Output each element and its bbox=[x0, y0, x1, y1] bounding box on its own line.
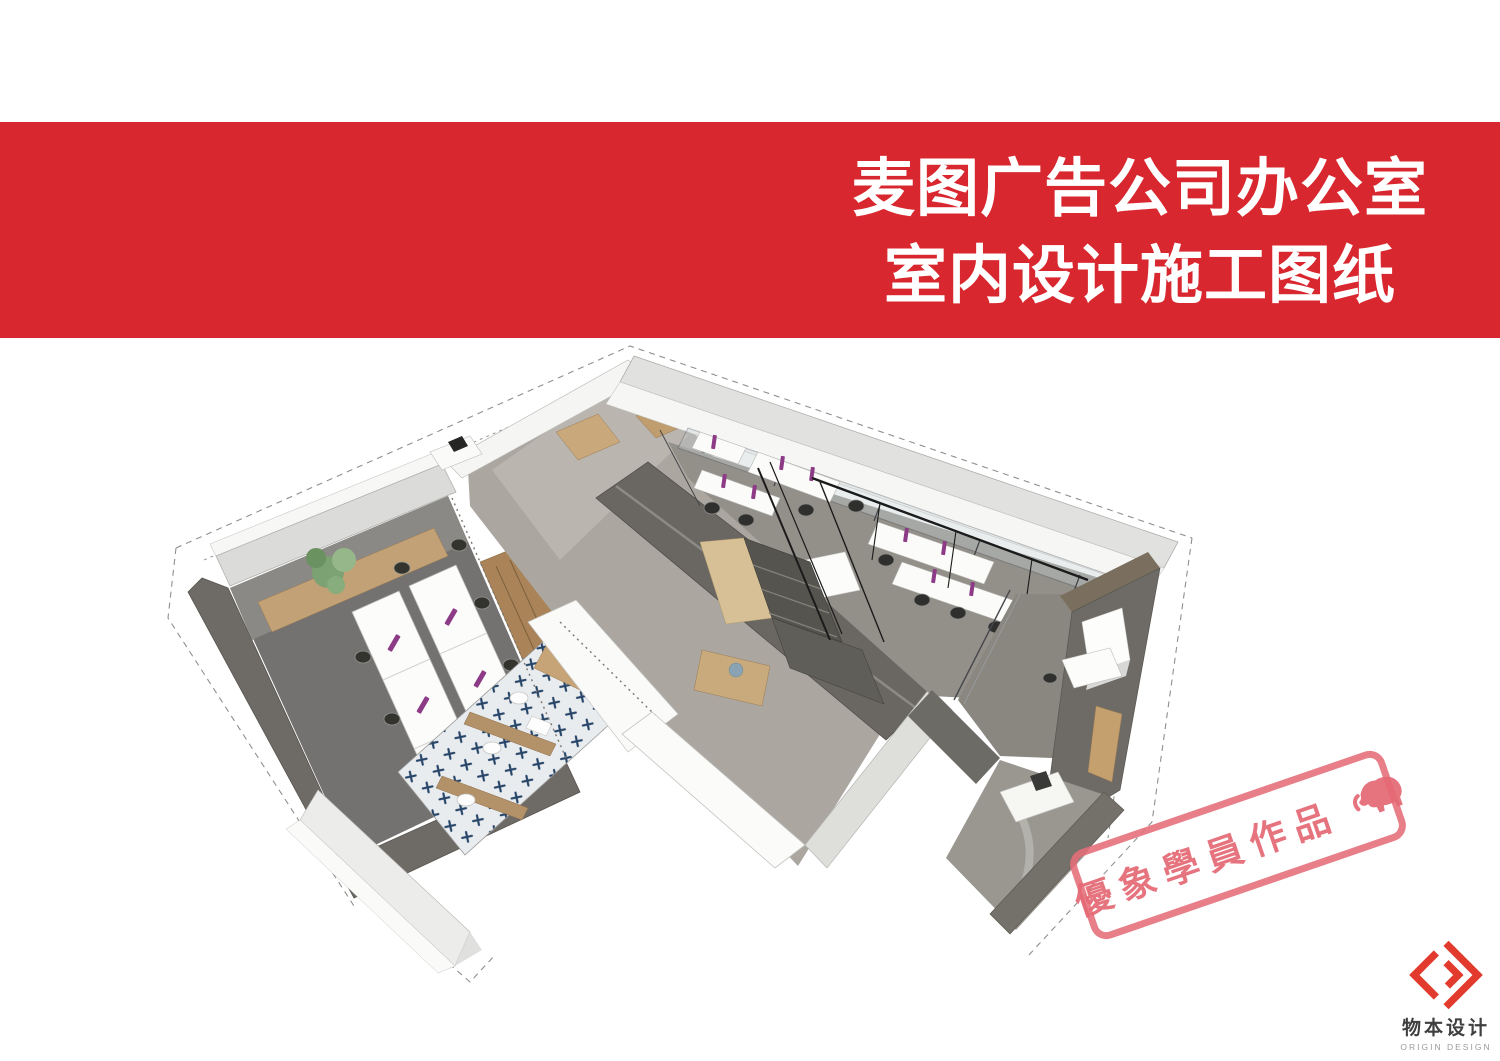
logo-name-cn: 物本设计 bbox=[1388, 1013, 1500, 1040]
logo-name-en: ORIGIN DESIGN bbox=[1388, 1042, 1500, 1052]
origin-design-logo: 物本设计 ORIGIN DESIGN bbox=[1388, 938, 1500, 1052]
slide-page: 麦图广告公司办公室 室内设计施工图纸 bbox=[0, 0, 1500, 1061]
pendant-lamp-icon bbox=[729, 663, 743, 677]
logo-mark-icon bbox=[1409, 938, 1483, 1012]
elephant-icon bbox=[1345, 768, 1413, 825]
office-3d-rendering bbox=[0, 0, 1500, 1061]
